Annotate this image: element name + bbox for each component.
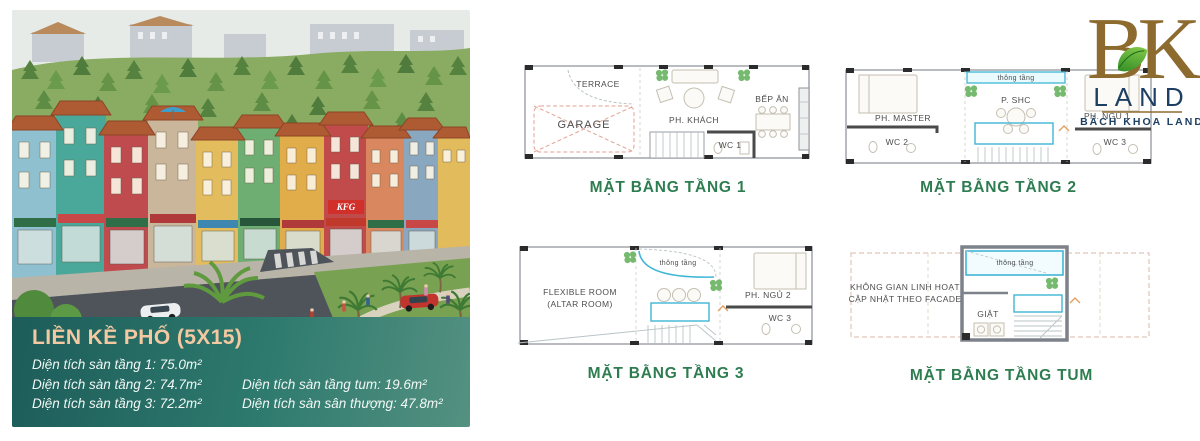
label-wc2: WC 2: [886, 137, 909, 147]
label-flex1: FLEXIBLE ROOM: [543, 287, 617, 297]
floorplan-tum-drawing: thông tầng KHÔNG GIAN LINH HOẠT CẬP NHẬT…: [848, 245, 1155, 345]
label-flex-note1: KHÔNG GIAN LINH HOẠT: [850, 282, 960, 292]
label-kitchen: BẾP ĂN: [755, 94, 788, 104]
dining-set: [756, 107, 790, 138]
label-terrace: TERRACE: [576, 79, 619, 89]
hero-rendering: KFG: [12, 10, 470, 427]
label-flex-note2: CẬP NHẬT THEO FACADE: [849, 294, 962, 304]
kitchen-counter: [799, 88, 809, 150]
caption-level1: MẶT BẰNG TẦNG 1: [590, 179, 747, 197]
spec-tum: Diện tích sàn tầng tum: 19.6m²: [242, 375, 443, 395]
label-garage: GARAGE: [557, 119, 610, 131]
spec-floor3: Diện tích sàn tầng 3: 72.2m²: [32, 394, 202, 414]
caption-tum: MẶT BẰNG TẦNG TUM: [910, 367, 1093, 385]
label-void: thông tầng: [996, 258, 1033, 267]
bkland-logo: BK LAND BÁCH KHOA LAND: [1080, 4, 1200, 132]
label-wc3: WC 3: [769, 313, 792, 323]
brochure-page: KFG: [0, 0, 1200, 441]
caption-level3: MẶT BẰNG TẦNG 3: [588, 365, 745, 383]
label-void: thông tầng: [997, 73, 1034, 82]
floorplan-level3: thông tầng FLEXIBLE ROOM (ALTAR ROOM) PH…: [518, 245, 814, 383]
floorplan-level1: TERRACE GARAGE PH. KHÁCH WC 1 BẾP ĂN MẶT…: [522, 62, 814, 197]
label-master: PH. MASTER: [875, 113, 931, 123]
master-bed: [859, 75, 917, 113]
label-shc: P. SHC: [1001, 95, 1031, 105]
kfc-sign-text: KFG: [336, 202, 356, 212]
bed2: [754, 253, 806, 289]
logo-name: LAND: [1093, 82, 1190, 112]
info-overlay-panel: LIỀN KỀ PHỐ (5X15) Diện tích sàn tầng 1:…: [12, 317, 470, 427]
area-specs-right: Diện tích sàn tầng tum: 19.6m² Diện tích…: [242, 375, 443, 414]
label-bed2: PH. NGỦ 2: [745, 289, 791, 300]
caption-level2: MẶT BẰNG TẦNG 2: [920, 179, 1077, 197]
area-specs-left: Diện tích sàn tầng 1: 75.0m² Diện tích s…: [32, 355, 202, 414]
product-title: LIỀN KỀ PHỐ (5X15): [32, 326, 242, 350]
floorplan-level3-drawing: thông tầng FLEXIBLE ROOM (ALTAR ROOM) PH…: [518, 245, 814, 347]
label-wc3: WC 3: [1104, 137, 1127, 147]
label-flex2: (ALTAR ROOM): [547, 299, 612, 309]
label-void: thông tầng: [659, 258, 696, 267]
stairs: [650, 132, 704, 158]
label-living: PH. KHÁCH: [669, 115, 719, 125]
floorplan-level1-drawing: TERRACE GARAGE PH. KHÁCH WC 1 BẾP ĂN: [522, 62, 814, 162]
label-wc1: WC 1: [719, 140, 742, 150]
kfc-sign: KFG: [328, 200, 364, 214]
spec-rooftop: Diện tích sàn sân thượng: 47.8m²: [242, 394, 443, 414]
floorplan-tum: thông tầng KHÔNG GIAN LINH HOẠT CẬP NHẬT…: [848, 245, 1155, 385]
label-laundry: GIẶT: [977, 309, 998, 319]
logo-tagline: BÁCH KHOA LAND: [1080, 115, 1200, 128]
spec-floor2: Diện tích sàn tầng 2: 74.7m²: [32, 375, 202, 395]
spec-floor1: Diện tích sàn tầng 1: 75.0m²: [32, 355, 202, 375]
seating: [658, 289, 701, 302]
